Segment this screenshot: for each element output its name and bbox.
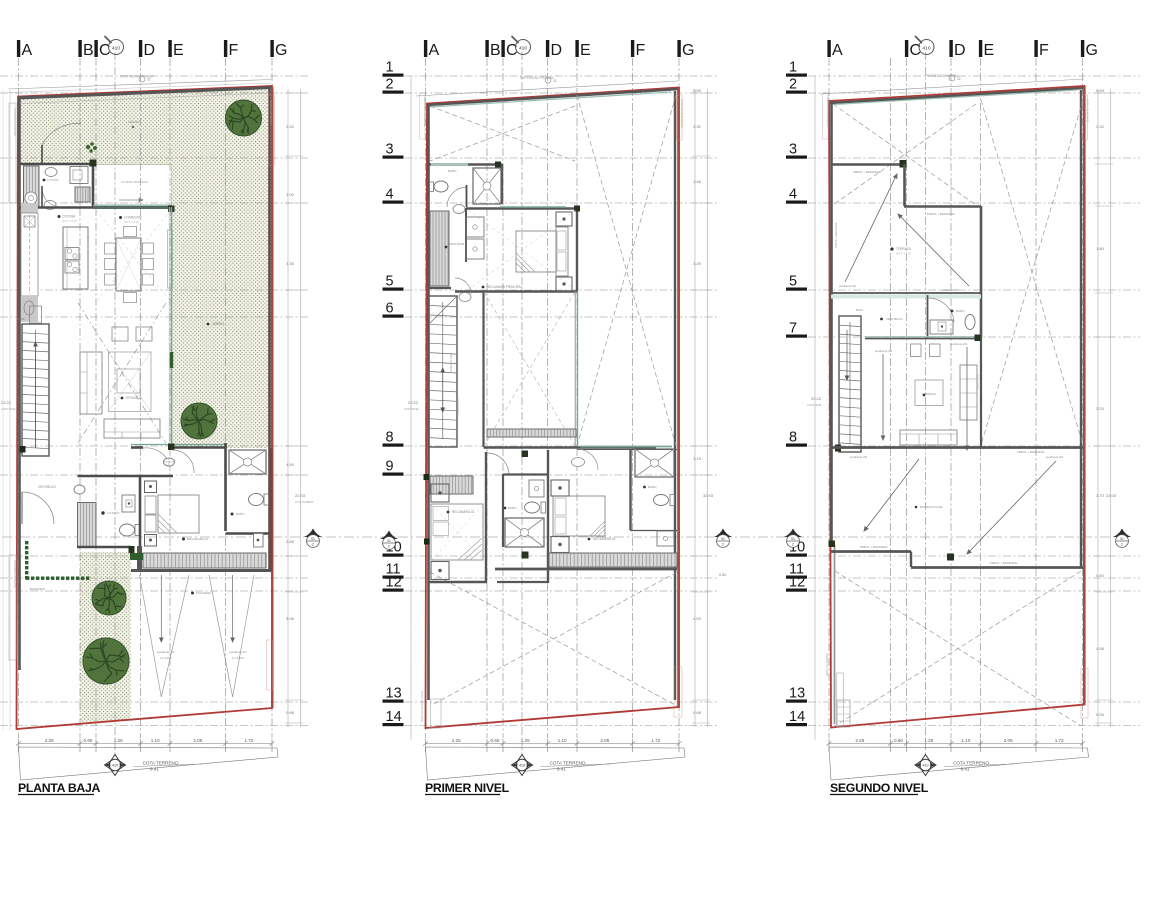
svg-text:410: 410	[922, 46, 930, 52]
svg-text:1.25: 1.25	[114, 738, 123, 743]
svg-text:2.25: 2.25	[855, 738, 864, 743]
svg-text:G: G	[682, 42, 694, 59]
svg-text:22.93: 22.93	[295, 493, 306, 498]
svg-text:01: 01	[721, 537, 725, 541]
svg-text:12: 12	[789, 575, 805, 591]
svg-text:PROPIEDAD PRIVADA: PROPIEDAD PRIVADA	[520, 76, 554, 80]
svg-text:PRETIL + BARANDAL: PRETIL + BARANDAL	[990, 561, 1018, 565]
svg-text:1.72: 1.72	[1055, 738, 1064, 743]
svg-text:B: B	[83, 42, 94, 59]
svg-text:COLINDANCIA VECINO: COLINDANCIA VECINO	[13, 560, 17, 588]
svg-text:2: 2	[1121, 543, 1123, 547]
svg-text:8: 8	[386, 430, 394, 446]
svg-text:23.22: 23.22	[408, 400, 419, 405]
svg-text:N.P.T. + 0.15: N.P.T. + 0.15	[124, 220, 139, 224]
svg-text:410: 410	[112, 46, 120, 52]
svg-text:BARDA COLINDANTE: BARDA COLINDANTE	[269, 100, 272, 126]
svg-text:1/2 BAÑO: 1/2 BAÑO	[107, 510, 120, 515]
svg-text:F: F	[1039, 42, 1049, 59]
svg-text:D: D	[144, 42, 156, 59]
svg-text:4.35: 4.35	[286, 261, 295, 266]
svg-text:D: D	[551, 42, 563, 59]
svg-text:0.50: 0.50	[719, 573, 726, 577]
svg-text:12: 12	[386, 575, 402, 591]
svg-text:0.60: 0.60	[84, 738, 93, 743]
svg-text:D: D	[954, 42, 966, 59]
svg-text:JARDIN: JARDIN	[212, 322, 224, 326]
svg-text:SUBE 18 ESC: SUBE 18 ESC	[456, 398, 460, 415]
svg-text:4.58: 4.58	[1096, 646, 1105, 651]
svg-text:pendiente 2%: pendiente 2%	[157, 650, 175, 654]
svg-text:01: 01	[311, 537, 315, 541]
svg-text:B: B	[490, 42, 501, 59]
svg-text:1: 1	[789, 60, 797, 76]
svg-text:2: 2	[386, 77, 394, 93]
svg-text:1.25: 1.25	[924, 738, 933, 743]
svg-text:s.c.3.40m: s.c.3.40m	[160, 656, 173, 660]
svg-text:COTA TERRENO: COTA TERRENO	[295, 501, 314, 504]
svg-text:2.32: 2.32	[693, 124, 702, 129]
svg-text:4: 4	[386, 187, 394, 203]
svg-text:N.P.T. + 0.15: N.P.T. + 0.15	[62, 219, 77, 223]
svg-text:5: 5	[386, 274, 394, 290]
svg-text:F: F	[229, 42, 239, 59]
svg-text:0.55: 0.55	[1096, 712, 1105, 717]
svg-text:2.32: 2.32	[1096, 124, 1105, 129]
svg-text:F: F	[636, 42, 646, 59]
svg-text:E: E	[984, 42, 995, 59]
svg-text:410: 410	[112, 764, 118, 768]
svg-text:410: 410	[519, 46, 527, 52]
svg-text:0.60: 0.60	[894, 738, 903, 743]
svg-text:COTA TERRENO: COTA TERRENO	[550, 761, 586, 766]
svg-text:VESTIBULO: VESTIBULO	[38, 485, 56, 489]
svg-text:PRETIL + BARANDAL: PRETIL + BARANDAL	[853, 170, 881, 174]
svg-text:pendiente 2%: pendiente 2%	[950, 342, 968, 346]
svg-text:22.03: 22.03	[1106, 493, 1117, 498]
svg-text:PRETIL + BARANDAL: PRETIL + BARANDAL	[834, 222, 838, 248]
svg-text:9.41: 9.41	[557, 767, 566, 772]
svg-text:4.50: 4.50	[286, 462, 295, 467]
svg-text:01: 01	[387, 539, 391, 543]
svg-text:3: 3	[789, 142, 797, 158]
svg-text:pendiente 2%: pendiente 2%	[850, 455, 868, 459]
svg-text:BAÑO: BAÑO	[448, 168, 457, 173]
svg-text:0.50: 0.50	[1096, 573, 1105, 578]
svg-text:3: 3	[386, 142, 394, 158]
svg-text:MURO DE COLINDANCIA: MURO DE COLINDANCIA	[680, 99, 683, 128]
svg-text:2.65: 2.65	[286, 539, 295, 544]
svg-text:BAÑO: BAÑO	[236, 511, 245, 516]
svg-text:2: 2	[722, 543, 724, 547]
svg-text:COTA TERRENO: COTA TERRENO	[143, 761, 179, 766]
svg-text:TERRAZA: TERRAZA	[896, 247, 912, 251]
svg-text:COMEDOR: COMEDOR	[124, 216, 142, 220]
svg-text:COTA NIVEL: COTA NIVEL	[1, 407, 17, 411]
svg-text:2: 2	[388, 545, 390, 549]
svg-text:9.41: 9.41	[961, 767, 970, 772]
svg-text:E: E	[173, 42, 184, 59]
svg-text:32: 32	[957, 77, 961, 81]
svg-text:E: E	[580, 42, 591, 59]
svg-text:DOBLE ALTURA: DOBLE ALTURA	[449, 352, 453, 372]
svg-text:pendiente 2%: pendiente 2%	[839, 284, 857, 288]
svg-text:14: 14	[789, 709, 805, 725]
svg-text:2: 2	[792, 543, 794, 547]
svg-text:PROP. COLINDANTE 20 mts: PROP. COLINDANTE 20 mts	[421, 690, 424, 722]
svg-text:6: 6	[386, 301, 394, 317]
svg-text:COLINDANCIA VECINO: COLINDANCIA VECINO	[13, 108, 17, 136]
svg-text:MURO COLINDANTE: MURO COLINDANTE	[1086, 99, 1089, 123]
svg-text:3.29: 3.29	[693, 261, 702, 266]
svg-text:1.72: 1.72	[244, 738, 253, 743]
svg-text:RECAMARA PRINCIPAL: RECAMARA PRINCIPAL	[487, 285, 523, 289]
svg-text:VESTIBULO: VESTIBULO	[886, 317, 904, 321]
svg-text:COTA NIVEL: COTA NIVEL	[404, 407, 420, 411]
svg-text:PRETIL + BARANDAL: PRETIL + BARANDAL	[860, 545, 888, 549]
svg-text:3.20: 3.20	[1096, 406, 1105, 411]
svg-text:COCINA: COCINA	[62, 215, 76, 219]
svg-text:1.10: 1.10	[558, 738, 567, 743]
svg-text:A: A	[429, 42, 440, 59]
svg-text:VESTIDOR: VESTIDOR	[449, 242, 465, 246]
svg-text:RECAMARA 03: RECAMARA 03	[593, 537, 616, 541]
svg-text:5: 5	[789, 274, 797, 290]
svg-text:0.59: 0.59	[693, 88, 702, 93]
svg-text:4: 4	[789, 187, 797, 203]
svg-text:PROP. COLINDANTE: PROP. COLINDANTE	[826, 652, 829, 676]
svg-text:5.06: 5.06	[286, 616, 295, 621]
svg-text:1.46: 1.46	[693, 179, 702, 184]
svg-text:s.c.3.40m: s.c.3.40m	[232, 656, 245, 660]
svg-text:N.P.T. + 5.25: N.P.T. + 5.25	[896, 252, 911, 256]
svg-text:1.10: 1.10	[151, 738, 160, 743]
svg-text:410: 410	[519, 764, 525, 768]
svg-text:pendiente 2%: pendiente 2%	[875, 349, 893, 353]
svg-text:1.10: 1.10	[961, 738, 970, 743]
svg-text:9.41: 9.41	[150, 767, 159, 772]
svg-text:BAÑO: BAÑO	[648, 484, 657, 489]
svg-text:G: G	[1086, 42, 1098, 59]
svg-text:RECAMARA 02: RECAMARA 02	[452, 510, 475, 514]
svg-text:2.05: 2.05	[193, 738, 202, 743]
svg-text:ACCESO PEATONAL: ACCESO PEATONAL	[121, 180, 149, 184]
svg-text:14: 14	[386, 709, 402, 725]
svg-text:3.70: 3.70	[1096, 493, 1105, 498]
svg-text:PRETIL DE COLINDANCIA: PRETIL DE COLINDANCIA	[423, 97, 426, 127]
svg-text:PRETIL + BARANDAL: PRETIL + BARANDAL	[1017, 450, 1045, 454]
svg-text:01: 01	[791, 537, 795, 541]
svg-text:2: 2	[789, 77, 797, 93]
svg-text:9: 9	[386, 459, 394, 475]
svg-text:1.00: 1.00	[286, 192, 295, 197]
svg-text:13: 13	[789, 686, 805, 702]
svg-text:8: 8	[789, 430, 797, 446]
svg-text:2.05: 2.05	[1004, 738, 1013, 743]
svg-text:COCHERA: COCHERA	[196, 591, 211, 595]
svg-text:1.80: 1.80	[1096, 246, 1105, 251]
svg-text:2.05: 2.05	[600, 738, 609, 743]
svg-text:32: 32	[147, 78, 151, 82]
svg-text:BANQUETA: BANQUETA	[30, 587, 45, 591]
svg-text:0.68: 0.68	[286, 710, 295, 715]
svg-text:SEGUNDO NIVEL: SEGUNDO NIVEL	[830, 781, 929, 795]
svg-text:PRETIL DE COLINDANCIA: PRETIL DE COLINDANCIA	[826, 97, 829, 127]
svg-text:1.72: 1.72	[651, 738, 660, 743]
svg-text:pendiente 2%: pendiente 2%	[941, 288, 959, 292]
svg-text:BAJADA PLUVIAL: BAJADA PLUVIAL	[920, 505, 943, 509]
svg-text:pendiente 2%: pendiente 2%	[229, 650, 247, 654]
svg-text:1.15: 1.15	[693, 456, 702, 461]
svg-text:BAÑO: BAÑO	[956, 308, 965, 313]
svg-text:A: A	[832, 42, 843, 59]
svg-text:G: G	[275, 42, 287, 59]
svg-text:pendiente 2%: pendiente 2%	[1046, 455, 1064, 459]
svg-text:32: 32	[553, 79, 557, 83]
svg-text:PRETIL + BARANDAL: PRETIL + BARANDAL	[927, 212, 955, 216]
svg-text:410: 410	[923, 764, 929, 768]
svg-text:13: 13	[386, 686, 402, 702]
svg-text:32.93: 32.93	[703, 493, 714, 498]
svg-text:2.25: 2.25	[452, 738, 461, 743]
svg-text:BAJA: BAJA	[856, 308, 863, 312]
svg-text:2: 2	[312, 543, 314, 547]
svg-text:COTA TERRENO: COTA TERRENO	[953, 761, 989, 766]
svg-text:PRIMER NIVEL: PRIMER NIVEL	[425, 781, 510, 795]
svg-text:SUBE: SUBE	[17, 317, 25, 321]
svg-text:1.25: 1.25	[521, 738, 530, 743]
svg-text:PLANTA BAJA: PLANTA BAJA	[18, 781, 101, 795]
svg-text:A: A	[22, 42, 33, 59]
svg-text:JARDIN: JARDIN	[128, 120, 139, 124]
svg-text:2.32: 2.32	[286, 124, 295, 129]
svg-text:2.25: 2.25	[45, 738, 54, 743]
svg-text:4.59: 4.59	[693, 616, 702, 621]
svg-text:0.59: 0.59	[1096, 88, 1105, 93]
svg-text:0.68: 0.68	[693, 710, 702, 715]
svg-text:BAÑO: BAÑO	[508, 505, 517, 510]
svg-text:1: 1	[386, 60, 394, 76]
svg-text:ESTANCIA: ESTANCIA	[126, 396, 143, 400]
svg-text:7: 7	[789, 321, 797, 337]
svg-text:01: 01	[1120, 537, 1124, 541]
svg-text:RECAMARA 01: RECAMARA 01	[187, 537, 208, 541]
svg-text:25.22: 25.22	[811, 396, 822, 401]
svg-text:0.60: 0.60	[491, 738, 500, 743]
